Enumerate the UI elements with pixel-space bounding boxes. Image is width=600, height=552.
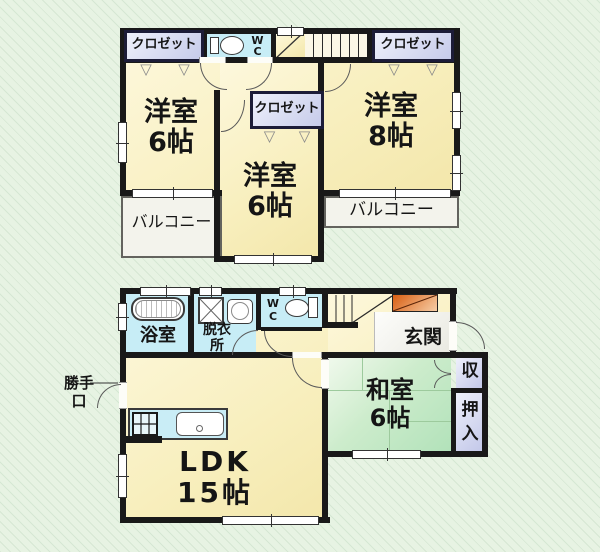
triangle-mark: ▽: [178, 62, 190, 77]
room-size: 6帖: [340, 404, 440, 432]
2f-balcony-right-label: バルコニー: [326, 201, 457, 220]
toilet-tank-icon-2f: [210, 37, 219, 54]
1f-wall-washitsu-top: [322, 352, 488, 358]
bath-text: 浴室: [140, 325, 176, 346]
room-name: 和室: [340, 376, 440, 404]
1f-dressing-label: 脱衣 所: [194, 322, 240, 354]
toilet-bowl-icon-1f: [285, 299, 309, 317]
room-name: 洋室: [222, 162, 318, 192]
1f-wall-oshiire-right: [482, 352, 488, 457]
2f-room-nw-label: 洋室 6帖: [126, 98, 216, 158]
triangle-mark: ▽: [140, 62, 152, 77]
closet-text: クロゼット: [254, 101, 319, 116]
toilet-bowl-icon-2f: [220, 36, 244, 55]
stove-grid: [132, 412, 158, 436]
1f-entrance-door-arc: [456, 322, 485, 349]
2f-staircase: [305, 34, 367, 57]
vanity-sink-bowl: [231, 302, 249, 320]
wc-text-line1: W: [262, 297, 284, 310]
2f-closet-left-label: クロゼット: [126, 38, 202, 52]
1f-staircase: [328, 294, 394, 325]
back-door-text-line2: 口: [56, 392, 102, 410]
2f-closet-right-door-marks: ▽▽: [375, 62, 451, 77]
oshiire-text-line2: 入: [458, 422, 482, 446]
1f-wall-dressing-wc: [256, 294, 261, 330]
1f-wall-storage-oshiire: [451, 388, 488, 393]
1f-window-bath-top: [140, 287, 191, 296]
triangle-mark: ▽: [299, 129, 311, 144]
1f-wall-kitchen-stub: [126, 436, 162, 443]
wc-text-line2: C: [262, 310, 284, 323]
1f-window-dressing-top: [199, 287, 222, 296]
2f-room-ne-label: 洋室 8帖: [330, 92, 452, 152]
1f-storage-label: 収: [458, 362, 482, 381]
balcony-text: バルコニー: [132, 212, 212, 231]
room-name: 洋室: [330, 92, 452, 122]
floor-plan: ▽▽ ▽▽ ▽▽ クロゼット クロゼット クロゼット W C 洋室 6帖 洋室: [0, 0, 600, 552]
bathtub-inner: [135, 300, 181, 318]
room-size: 6帖: [126, 128, 216, 158]
1f-ldk-label: LDK 15帖: [152, 446, 278, 508]
2f-closet-center-door-marks: ▽▽: [252, 129, 322, 144]
1f-window-ldk-left: [118, 454, 127, 498]
1f-oshiire-label: 押 入: [458, 398, 482, 446]
2f-room-center-label: 洋室 6帖: [222, 162, 318, 222]
triangle-mark: ▽: [426, 62, 438, 77]
room-size: 15帖: [152, 477, 278, 508]
dressing-text-line2: 所: [194, 338, 240, 354]
dressing-text-line1: 脱衣: [194, 322, 240, 338]
2f-window-center-bottom: [234, 255, 312, 264]
closet-text: クロゼット: [380, 37, 445, 52]
1f-window-washitsu-bottom: [352, 450, 421, 459]
closet-text: クロゼット: [131, 37, 196, 52]
2f-closet-left-door-marks: ▽▽: [127, 62, 203, 77]
washing-machine-x: [198, 297, 224, 324]
1f-washitsu-label: 和室 6帖: [340, 376, 440, 432]
kitchen-faucet-icon: [196, 425, 203, 432]
back-door-label-pointer: [88, 378, 120, 388]
2f-window-ne-balcony: [339, 189, 451, 198]
1f-wall-washitsu-oshiire: [451, 393, 456, 451]
2f-window-nw-balcony: [132, 189, 213, 198]
toilet-tank-icon-1f: [308, 297, 318, 318]
2f-window-top: [277, 27, 304, 36]
balcony-text: バルコニー: [349, 200, 434, 220]
1f-wall-stairs-bottom: [322, 322, 358, 328]
2f-window-right-upper: [452, 92, 461, 129]
entrance-text: 玄関: [404, 326, 442, 348]
1f-entrance-label: 玄関: [394, 327, 452, 348]
triangle-mark: ▽: [388, 62, 400, 77]
2f-closet-center-label: クロゼット: [250, 102, 324, 116]
2f-window-right-lower: [452, 155, 461, 191]
room-name: 洋室: [126, 98, 216, 128]
1f-bath-label: 浴室: [130, 326, 186, 346]
triangle-mark: ▽: [264, 129, 276, 144]
1f-wc-label: W C: [262, 297, 284, 323]
1f-window-ldk-bottom: [222, 516, 319, 525]
wc-text-line2: C: [246, 46, 269, 57]
storage-text: 収: [462, 361, 479, 381]
room-name: LDK: [152, 446, 278, 477]
2f-closet-right-label: クロゼット: [374, 38, 452, 52]
1f-ldk-washitsu-opening: [321, 359, 329, 389]
oshiire-text-line1: 押: [458, 398, 482, 422]
1f-window-wc-top: [279, 287, 306, 296]
1f-window-bath-left: [118, 303, 127, 331]
kitchen-sink-icon: [176, 412, 224, 436]
2f-wc-label: W C: [246, 35, 269, 57]
room-size: 8帖: [330, 122, 452, 152]
2f-balcony-left-label: バルコニー: [123, 213, 220, 231]
room-size: 6帖: [222, 192, 318, 222]
1f-shoe-cabinet-diagonal: [392, 294, 438, 312]
